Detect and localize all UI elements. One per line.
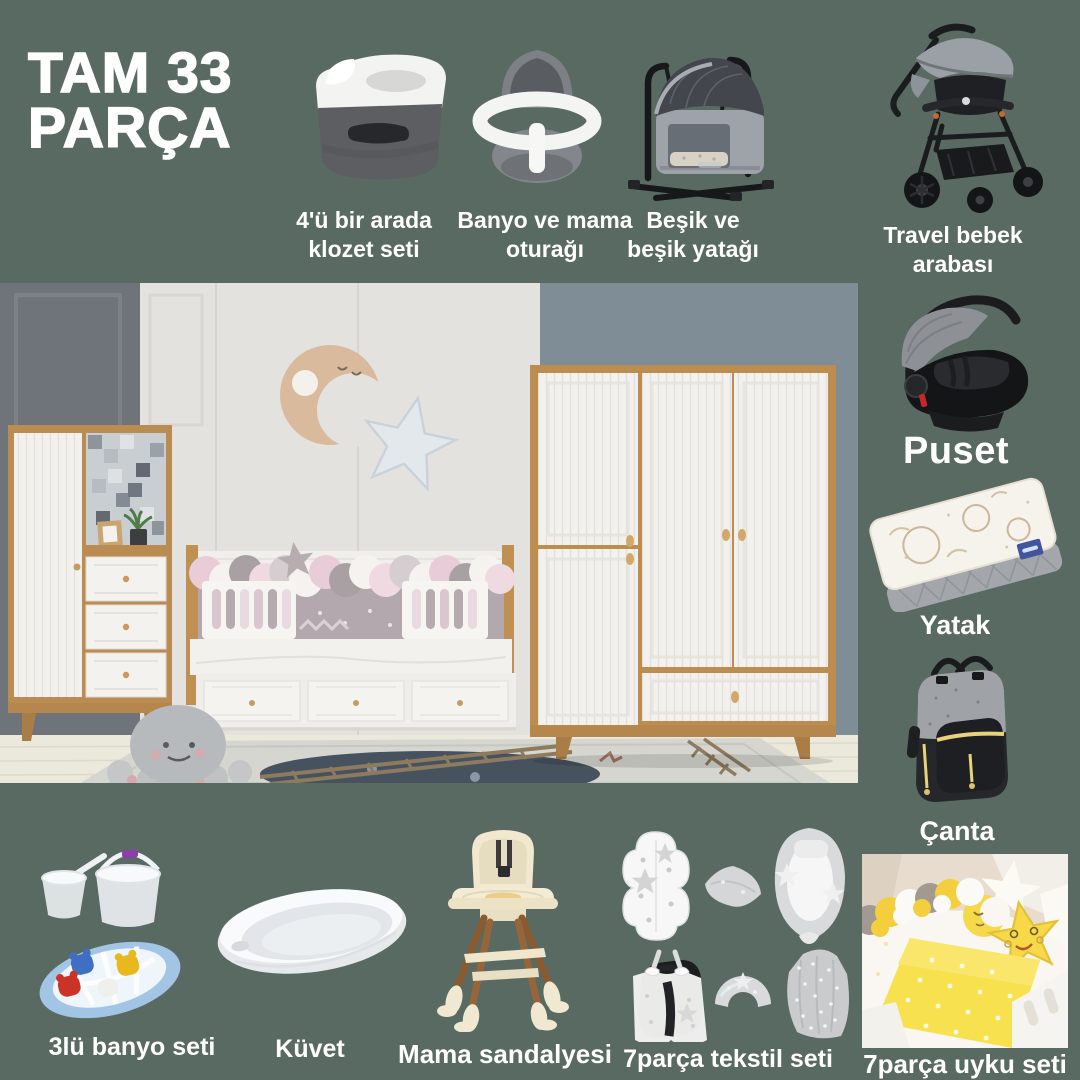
besik-label-line1: Beşik ve [593,206,793,235]
product-yatak [864,472,1066,612]
kuvet-label: Küvet [210,1034,410,1066]
product-puset [876,286,1044,434]
klozet-image [294,46,458,200]
product-kuvet [211,870,413,994]
klozet-label-line2: klozet seti [254,235,474,264]
uyku-seti-label: 7parça uyku seti [856,1048,1074,1080]
mama-sandalyesi-image [426,822,578,1032]
besik-label-line2: beşik yatağı [593,235,793,264]
travel-arabasi-image [878,14,1046,220]
tekstil-seti-image [615,824,851,1042]
travel-arabasi-label-line1: Travel bebek [853,221,1053,250]
uyku-seti-image [862,854,1068,1048]
puset-label-text: Puset [856,428,1056,476]
nursery-room-photo [0,283,858,783]
title-line1: TAM 33 [28,46,288,101]
tekstil-seti-label: 7parça tekstil seti [618,1044,838,1076]
banyo-seti-image [24,844,190,1026]
product-mama-sandalyesi [426,822,578,1032]
besik-image [612,26,780,210]
canta-label: Çanta [857,814,1057,848]
travel-arabasi-label-line2: arabası [853,250,1053,279]
banyo-oturagi-image [470,28,604,188]
besik-label: Beşik ve beşik yatağı [593,206,793,264]
banyo-seti-label: 3lü banyo seti [27,1032,237,1064]
title-line2: PARÇA [28,101,288,156]
klozet-label: 4'ü bir arada klozet seti [254,206,474,264]
product-klozet [294,46,458,200]
product-travel-arabasi [878,14,1046,220]
travel-arabasi-label: Travel bebek arabası [853,221,1053,279]
product-canta [896,646,1022,814]
mama-sandalyesi-label-text: Mama sandalyesi [395,1038,615,1071]
yatak-label: Yatak [855,608,1055,642]
kuvet-label-text: Küvet [210,1034,410,1066]
yatak-image [864,472,1066,612]
page-title: TAM 33 PARÇA [28,46,288,157]
promo-collage: TAM 33 PARÇA 4'ü bir arada klozet seti B… [0,0,1080,1080]
kuvet-image [211,870,413,994]
uyku-seti-label-text: 7parça uyku seti [856,1048,1074,1080]
product-banyo-oturagi [470,28,604,188]
klozet-label-line1: 4'ü bir arada [254,206,474,235]
yatak-label-text: Yatak [855,608,1055,642]
product-uyku-seti [862,854,1068,1048]
banyo-seti-label-text: 3lü banyo seti [27,1032,237,1064]
nursery-room-image [0,283,858,783]
tekstil-seti-label-text: 7parça tekstil seti [618,1044,838,1076]
product-banyo-seti [24,844,190,1026]
mama-sandalyesi-label: Mama sandalyesi [395,1038,615,1071]
canta-image [896,646,1022,814]
puset-image [876,286,1044,434]
puset-label: Puset [856,428,1056,476]
canta-label-text: Çanta [857,814,1057,848]
product-besik [612,26,780,210]
product-tekstil-seti [615,824,851,1042]
